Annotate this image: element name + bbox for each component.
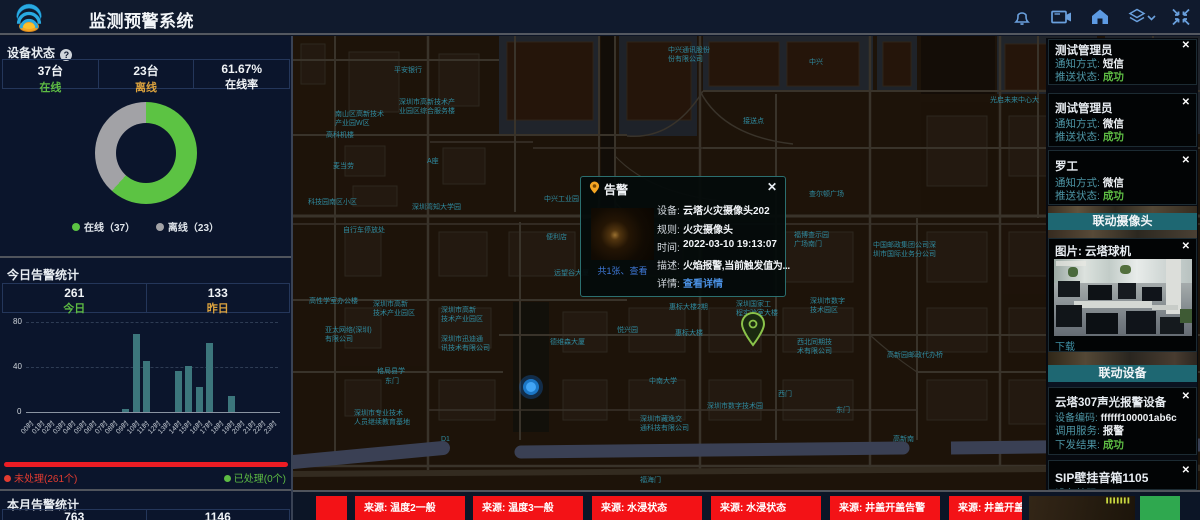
svg-text:有限公司: 有限公司 [325, 334, 353, 343]
svg-text:便利店: 便利店 [546, 232, 567, 241]
svg-text:深圳市高新: 深圳市高新 [441, 305, 476, 314]
svg-text:深圳市专业技术: 深圳市专业技术 [354, 408, 403, 417]
svg-text:科技园南区小区: 科技园南区小区 [308, 197, 357, 206]
svg-text:东门: 东门 [836, 405, 850, 414]
svg-text:亚太网络(深圳): 亚太网络(深圳) [325, 325, 372, 334]
svg-text:西北同期技: 西北同期技 [797, 337, 832, 346]
svg-text:术有限公司: 术有限公司 [797, 346, 832, 355]
svg-text:西门: 西门 [778, 389, 792, 398]
svg-text:圳市国际业务分公司: 圳市国际业务分公司 [873, 249, 936, 258]
svg-text:惠标大楼2期: 惠标大楼2期 [669, 302, 708, 311]
svg-text:深圳市数字: 深圳市数字 [810, 296, 845, 305]
svg-text:惠标大楼: 惠标大楼 [675, 328, 703, 337]
svg-text:查尔顿广场: 查尔顿广场 [809, 189, 844, 198]
svg-text:中国邮政集团公司深: 中国邮政集团公司深 [873, 240, 936, 249]
svg-text:技术园区: 技术园区 [810, 305, 838, 314]
svg-text:份有限公司: 份有限公司 [668, 54, 703, 63]
svg-text:高科机楼: 高科机楼 [326, 130, 354, 139]
svg-text:福博查示园: 福博查示园 [794, 230, 829, 239]
svg-text:深圳市藏逸交: 深圳市藏逸交 [640, 414, 682, 423]
svg-text:高性学室办公楼: 高性学室办公楼 [309, 296, 358, 305]
svg-text:深圳市高新技术产: 深圳市高新技术产 [399, 97, 455, 106]
svg-text:深圳国家工: 深圳国家工 [736, 299, 771, 308]
svg-text:中南大学: 中南大学 [649, 376, 677, 385]
svg-text:悦兴园: 悦兴园 [617, 325, 638, 334]
svg-text:福海门: 福海门 [640, 475, 661, 484]
svg-text:麦当劳: 麦当劳 [333, 161, 354, 170]
svg-text:接送点: 接送点 [743, 116, 764, 125]
svg-text:深圳市迅迪通: 深圳市迅迪通 [441, 334, 483, 343]
svg-text:平安银行: 平安银行 [394, 65, 422, 74]
svg-text:高新园邮政代办桥: 高新园邮政代办桥 [887, 350, 943, 359]
svg-text:技术产业园区: 技术产业园区 [373, 308, 415, 317]
svg-text:人员继续教育基地: 人员继续教育基地 [354, 417, 410, 426]
svg-text:东门: 东门 [385, 376, 399, 385]
svg-text:产业园W区: 产业园W区 [335, 118, 370, 127]
svg-text:自行车停放处: 自行车停放处 [343, 225, 385, 234]
svg-text:深圳湾知大学园: 深圳湾知大学园 [412, 202, 461, 211]
svg-text:广场南门: 广场南门 [794, 239, 822, 248]
svg-text:光启未来中心大: 光启未来中心大 [990, 95, 1039, 104]
svg-text:中兴通讯股份: 中兴通讯股份 [668, 45, 710, 54]
svg-text:A座: A座 [427, 156, 439, 165]
svg-text:讯技术有限公司: 讯技术有限公司 [441, 343, 490, 352]
svg-text:南山区高新技术: 南山区高新技术 [335, 109, 384, 118]
svg-text:格局县学: 格局县学 [377, 366, 405, 375]
svg-text:业园区综合服务楼: 业园区综合服务楼 [399, 106, 455, 115]
svg-text:中兴工业园: 中兴工业园 [544, 194, 579, 203]
svg-text:技术产业园区: 技术产业园区 [441, 314, 483, 323]
svg-text:深圳市高新: 深圳市高新 [373, 299, 408, 308]
svg-text:通科技有限公司: 通科技有限公司 [640, 423, 689, 432]
svg-text:德维森大厦: 德维森大厦 [550, 337, 585, 346]
svg-text:深圳市数字技术园: 深圳市数字技术园 [707, 401, 763, 410]
svg-text:中兴: 中兴 [809, 57, 823, 66]
